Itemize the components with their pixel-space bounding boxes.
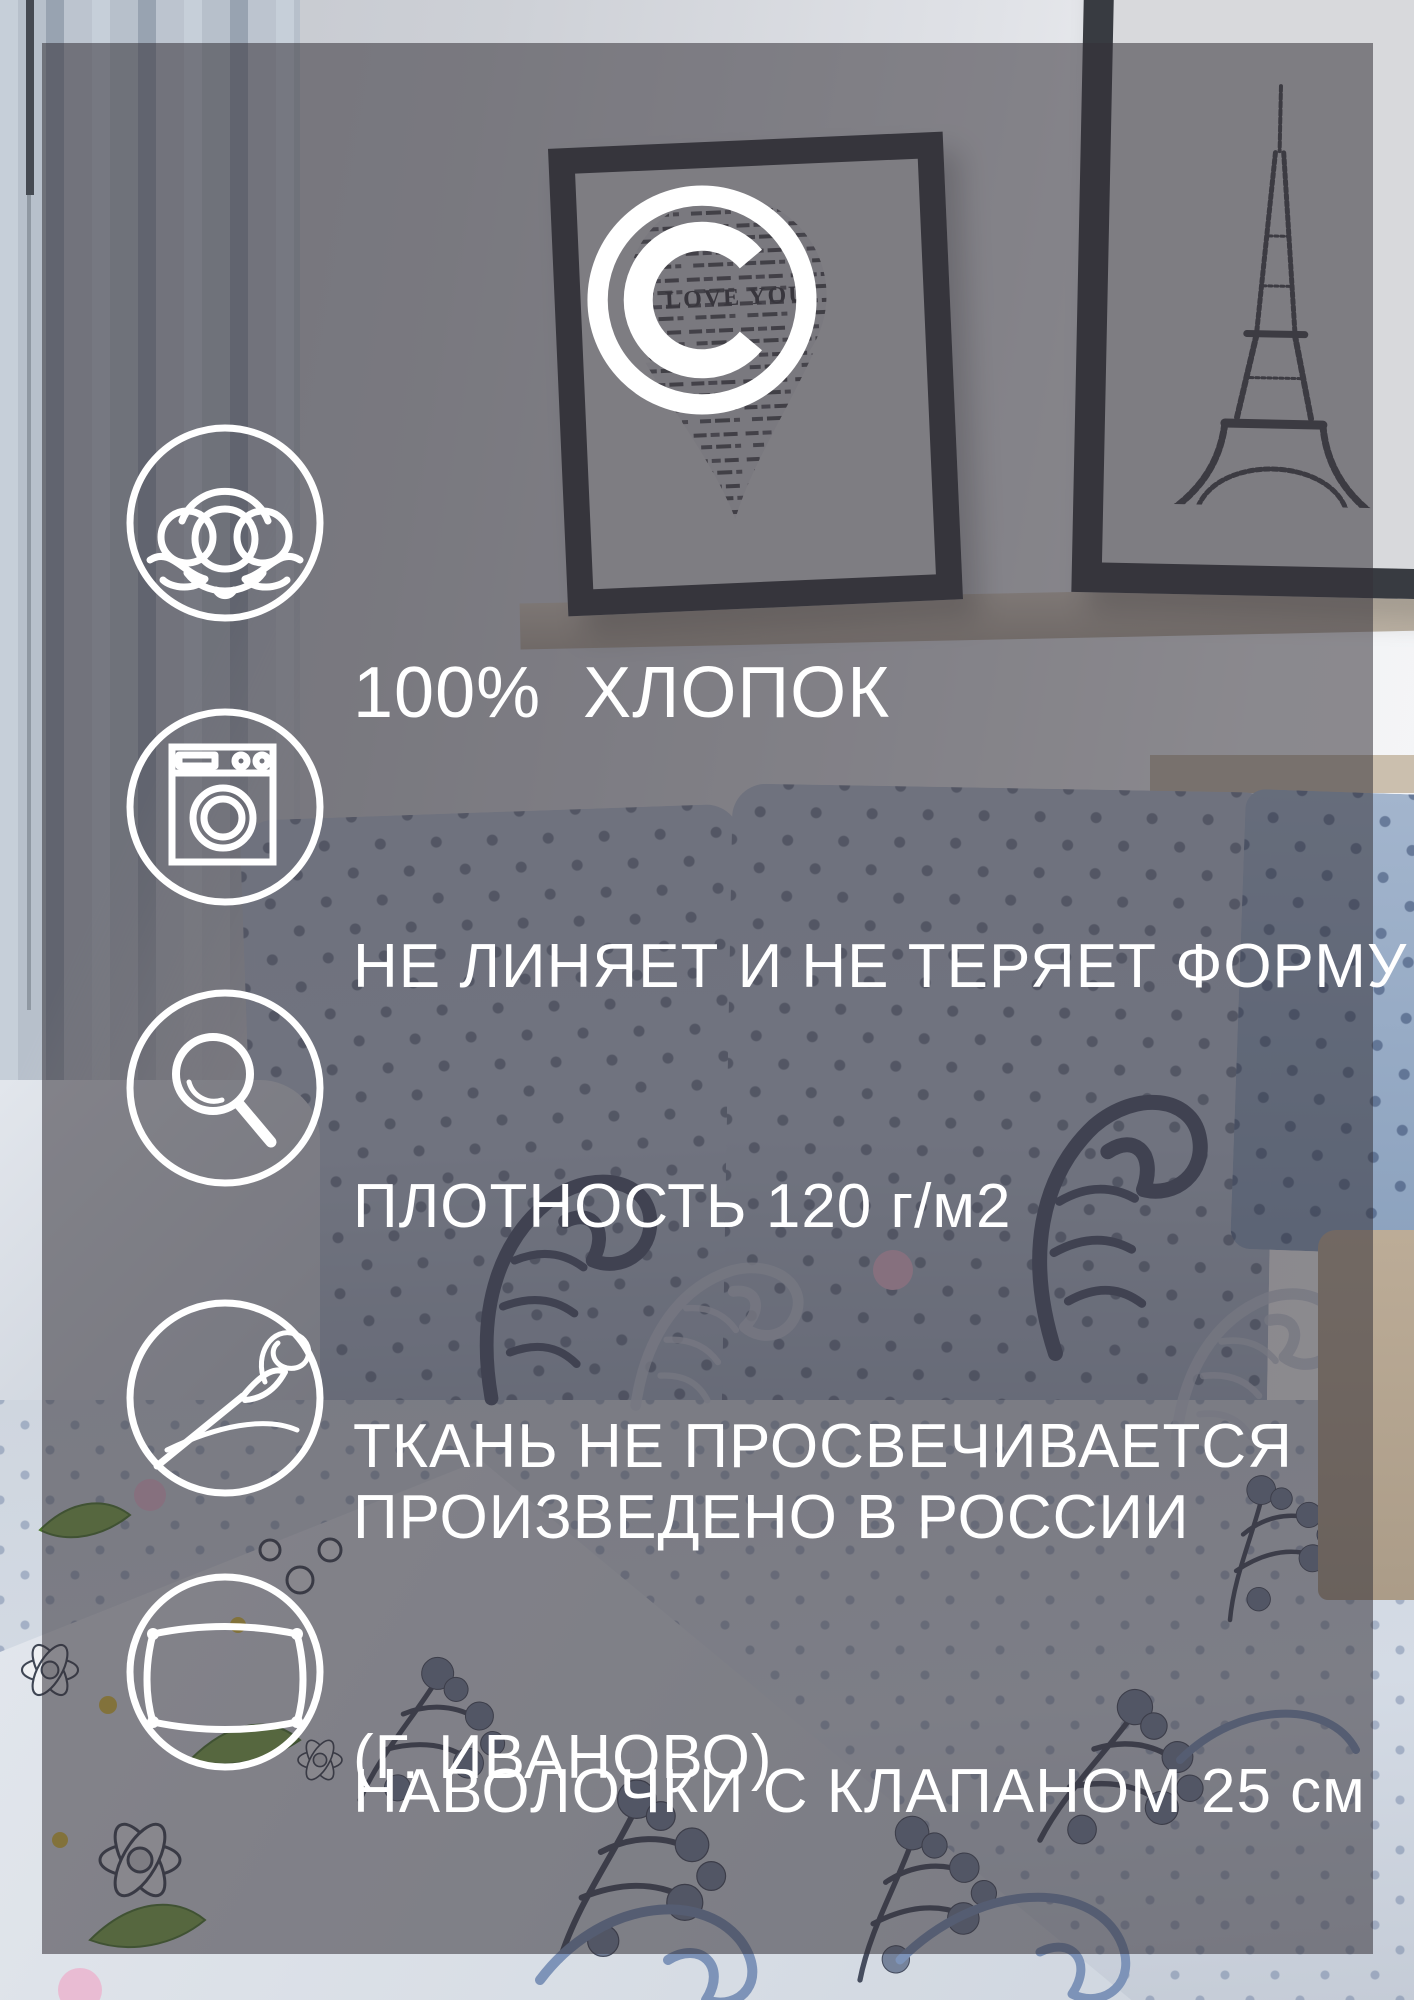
feature-line: НЕ ЛИНЯЕТ И НЕ ТЕРЯЕТ ФОРМУ (353, 927, 1407, 1007)
feature-line: 100% ХЛОПОК (353, 653, 890, 733)
cotton-icon (125, 423, 325, 623)
feature-line: ПРОИЗВЕДЕНО В РОССИИ (353, 1478, 1190, 1558)
window-frame-edge (26, 0, 34, 195)
magnifier-icon (125, 988, 325, 1188)
feature-closure: НАВОЛОЧКИ С КЛАПАНОМ 25 см ПОДОДЕЯЛЬНИК … (353, 1592, 1414, 2000)
washing-machine-icon (125, 707, 325, 907)
needle-thread-icon (125, 1298, 325, 1498)
feature-line: ПОДОДЕЯЛЬНИК С ВЫРЕЗОМ СБОКУ (353, 1992, 1414, 2000)
product-infographic: I LOVE YOU (0, 0, 1414, 2000)
curtain-fold-shadow (27, 190, 31, 1010)
pillow-icon (125, 1572, 325, 1772)
logo-letter-c (638, 236, 751, 364)
feature-line: НАВОЛОЧКИ С КЛАПАНОМ 25 см (353, 1752, 1414, 1832)
brand-logo (586, 184, 818, 416)
feature-line: ПЛОТНОСТЬ 120 г/м2 (353, 1167, 1293, 1247)
